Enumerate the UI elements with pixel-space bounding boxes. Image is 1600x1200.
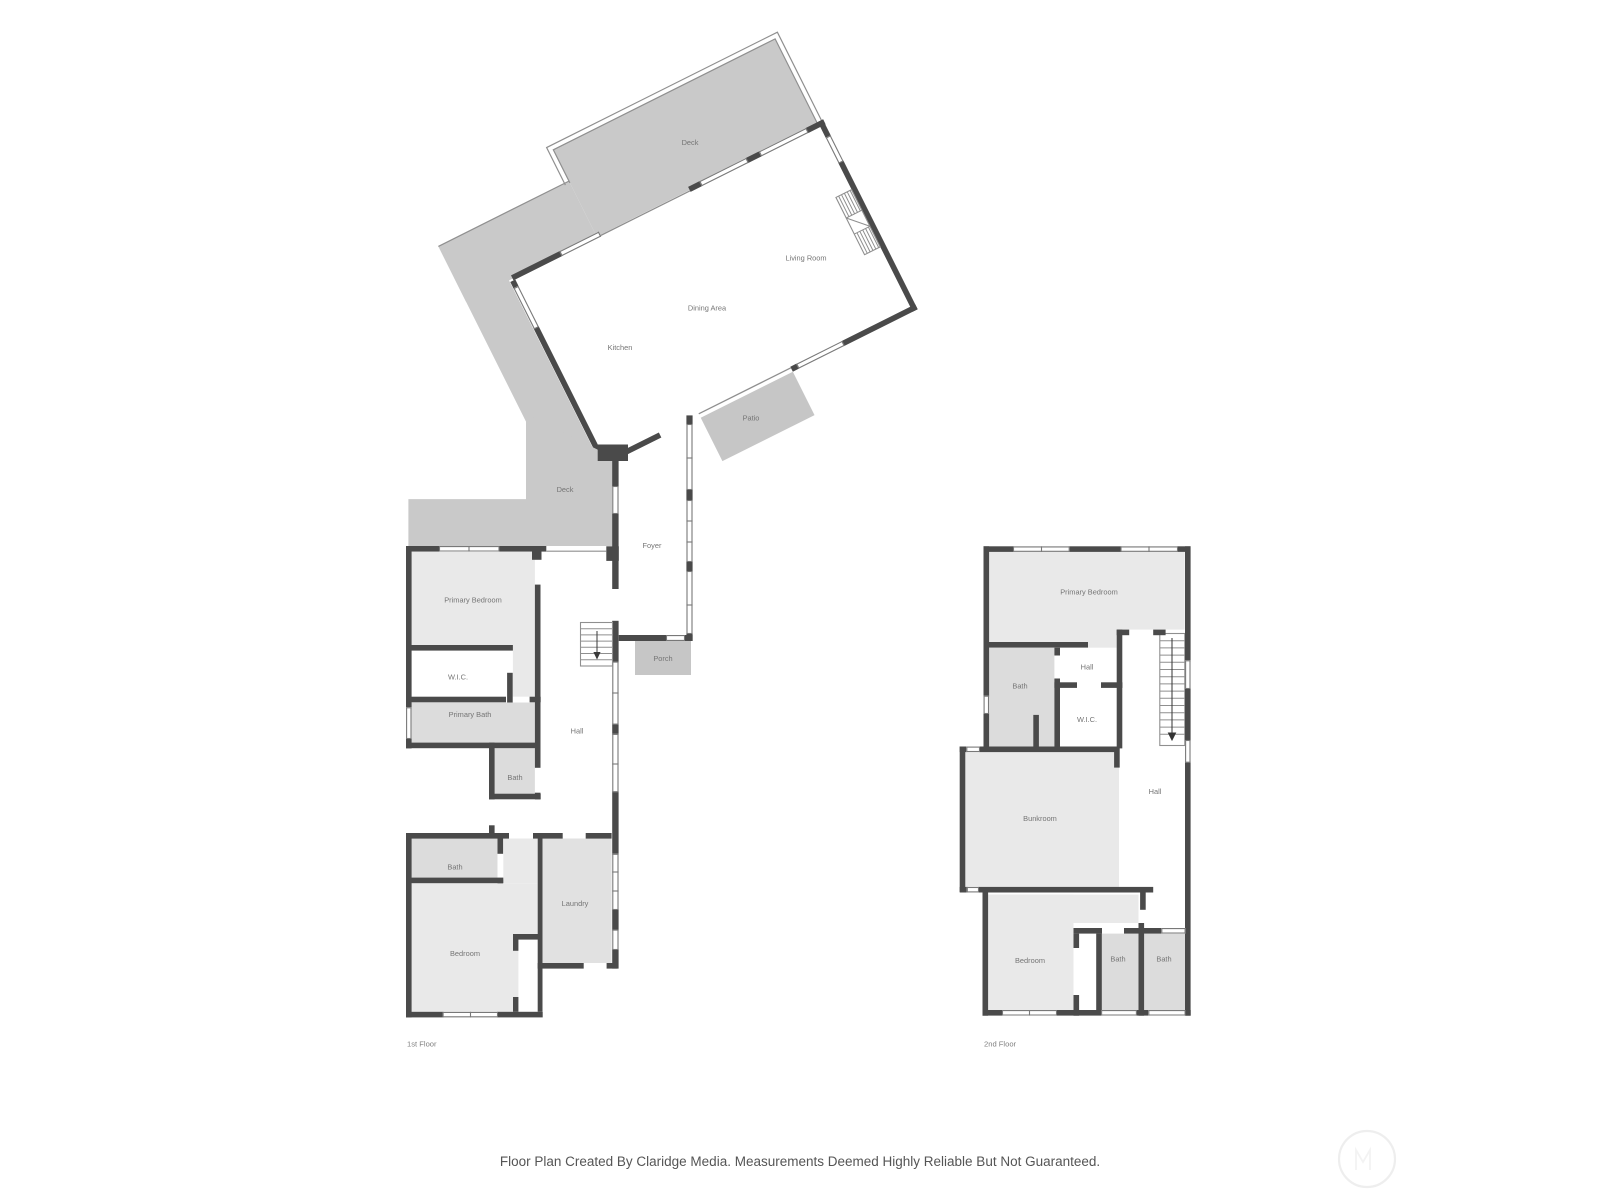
svg-text:Bunkroom: Bunkroom — [1023, 814, 1057, 823]
svg-text:Hall: Hall — [571, 727, 584, 736]
svg-text:Bath: Bath — [1110, 955, 1125, 964]
svg-text:W.I.C.: W.I.C. — [448, 673, 468, 682]
svg-text:Hall: Hall — [1081, 663, 1094, 672]
svg-text:2nd Floor: 2nd Floor — [984, 1040, 1017, 1049]
svg-text:Bath: Bath — [1156, 955, 1171, 964]
svg-text:Foyer: Foyer — [643, 541, 662, 550]
svg-text:Deck: Deck — [682, 138, 699, 147]
svg-text:Floor Plan Created By Claridge: Floor Plan Created By Claridge Media. Me… — [500, 1154, 1100, 1169]
svg-text:Primary Bedroom: Primary Bedroom — [1060, 588, 1118, 597]
svg-text:Porch: Porch — [653, 654, 672, 663]
svg-text:Deck: Deck — [557, 485, 574, 494]
svg-text:Laundry: Laundry — [562, 899, 589, 908]
svg-text:Bedroom: Bedroom — [1015, 956, 1045, 965]
svg-text:Living Room: Living Room — [785, 254, 826, 263]
svg-text:Kitchen: Kitchen — [608, 343, 633, 352]
svg-text:Hall: Hall — [1149, 787, 1162, 796]
svg-text:1st Floor: 1st Floor — [407, 1040, 437, 1049]
svg-text:Bedroom: Bedroom — [450, 949, 480, 958]
svg-text:Dining Area: Dining Area — [688, 304, 727, 313]
svg-text:W.I.C.: W.I.C. — [1077, 715, 1097, 724]
svg-text:Bath: Bath — [507, 773, 522, 782]
svg-text:Primary Bath: Primary Bath — [449, 710, 492, 719]
svg-text:Bath: Bath — [447, 863, 462, 872]
svg-text:Primary Bedroom: Primary Bedroom — [444, 596, 502, 605]
svg-text:Patio: Patio — [743, 414, 760, 423]
svg-text:Bath: Bath — [1012, 682, 1027, 691]
